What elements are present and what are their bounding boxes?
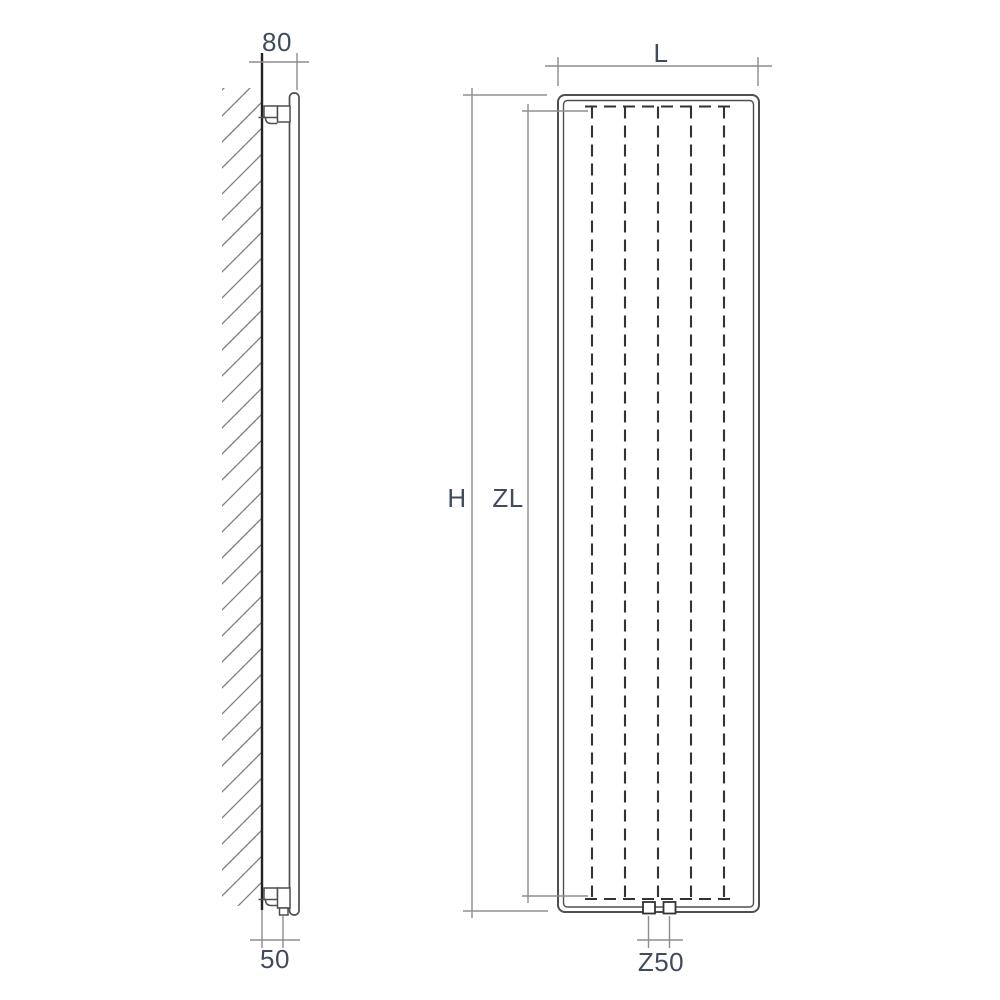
top-bracket-clip bbox=[264, 106, 278, 118]
label-width-L: L bbox=[654, 38, 669, 68]
radiator-panel-side bbox=[290, 93, 300, 915]
label-element-height-ZL: ZL bbox=[492, 483, 523, 513]
bottom-bracket-arm bbox=[278, 888, 291, 908]
top-bracket-arm bbox=[278, 106, 291, 122]
dim-depth-80 bbox=[249, 53, 309, 90]
connection-valve-left bbox=[643, 902, 655, 914]
label-pipe-offset-50: 50 bbox=[260, 944, 290, 974]
bottom-bracket-clip bbox=[264, 888, 278, 900]
bottom-pipe-connection bbox=[280, 908, 289, 915]
front-view bbox=[558, 95, 759, 914]
diagram-svg: 80 50 L H ZL Z50 bbox=[0, 0, 1000, 1000]
front-object-lines bbox=[558, 95, 759, 912]
label-height-H: H bbox=[447, 483, 466, 513]
label-connection-Z50: Z50 bbox=[638, 947, 684, 977]
side-view bbox=[222, 53, 299, 915]
dim-pipe-offset-50 bbox=[250, 910, 300, 948]
label-depth-80: 80 bbox=[262, 27, 292, 57]
top-mounting-bracket bbox=[259, 106, 291, 124]
connection-valve-right bbox=[664, 902, 676, 914]
radiator-dimension-diagram: 80 50 L H ZL Z50 bbox=[0, 0, 1000, 1000]
dim-connection-Z50 bbox=[637, 916, 683, 948]
radiator-outer-frame bbox=[558, 95, 759, 912]
wall-section-hatch bbox=[222, 88, 262, 906]
side-object-lines bbox=[259, 93, 300, 915]
bottom-mounting-bracket bbox=[259, 888, 291, 915]
